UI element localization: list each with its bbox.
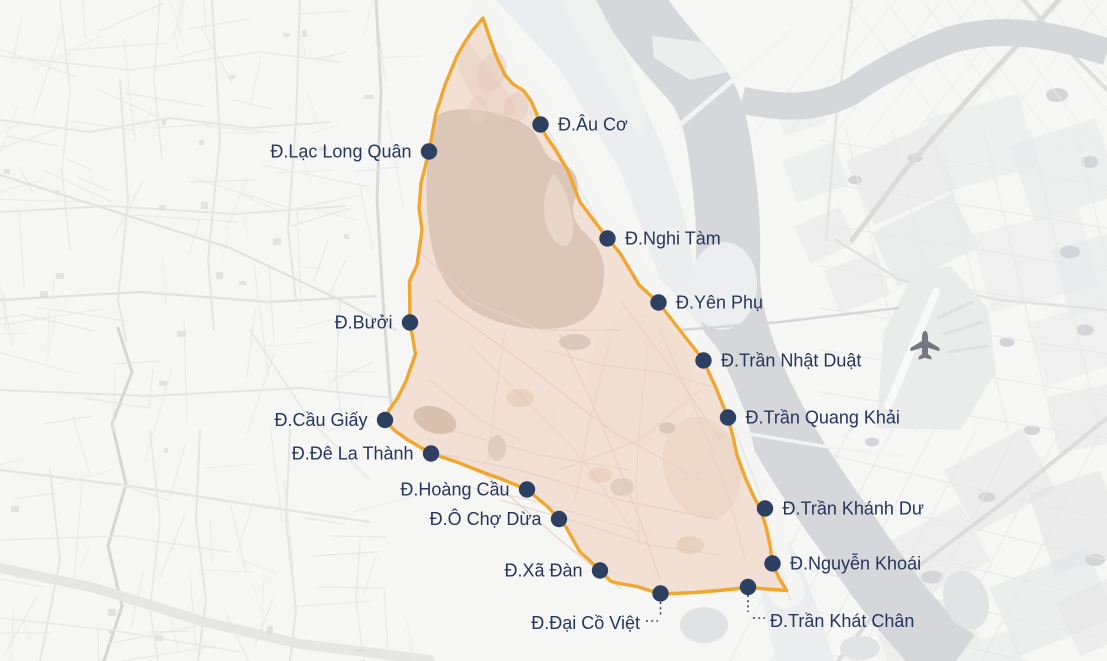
svg-text:Đ.Trần Nhật Duật: Đ.Trần Nhật Duật — [721, 351, 861, 371]
svg-text:Đ.Cầu Giấy: Đ.Cầu Giấy — [274, 410, 367, 430]
svg-text:Đ.Bưởi: Đ.Bưởi — [335, 313, 393, 333]
svg-text:Đ.Yên Phụ: Đ.Yên Phụ — [676, 293, 763, 313]
svg-text:Đ.Trần Khánh Dư: Đ.Trần Khánh Dư — [783, 499, 924, 519]
svg-text:Đ.Đại Cồ Việt: Đ.Đại Cồ Việt — [531, 613, 640, 633]
svg-text:Đ.Lạc Long Quân: Đ.Lạc Long Quân — [270, 142, 411, 162]
svg-text:Đ.Đê La Thành: Đ.Đê La Thành — [292, 444, 414, 464]
svg-text:Đ.Nguyễn Khoái: Đ.Nguyễn Khoái — [790, 553, 921, 574]
svg-text:Đ.Trần Quang Khải: Đ.Trần Quang Khải — [746, 408, 900, 428]
svg-text:Đ.Xã Đàn: Đ.Xã Đàn — [504, 561, 582, 581]
svg-text:Đ.Hoàng Cầu: Đ.Hoàng Cầu — [400, 480, 509, 500]
svg-text:Đ.Trần Khát Chân: Đ.Trần Khát Chân — [770, 611, 914, 631]
svg-text:Đ.Âu Cơ: Đ.Âu Cơ — [558, 115, 628, 135]
svg-text:Đ.Nghi Tàm: Đ.Nghi Tàm — [625, 229, 721, 249]
svg-text:Đ.Ô Chợ Dừa: Đ.Ô Chợ Dừa — [430, 508, 543, 529]
